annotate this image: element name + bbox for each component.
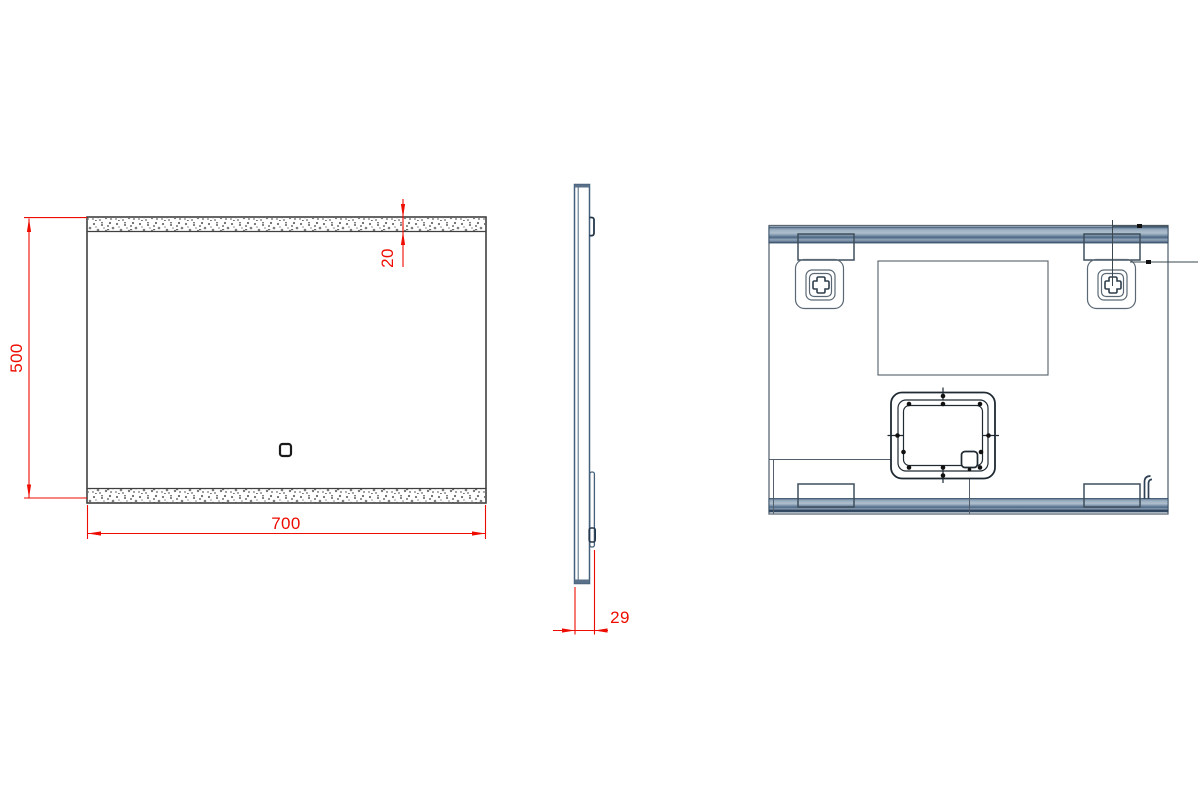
led-strip-bottom bbox=[88, 489, 485, 503]
led-strip-top bbox=[88, 218, 485, 232]
mounting-rail-top bbox=[769, 227, 1168, 243]
technical-drawing-page: 500 700 20 bbox=[0, 0, 1200, 800]
dim-height-label: 500 bbox=[7, 343, 26, 373]
junction-box bbox=[888, 388, 1000, 484]
dim-width-label: 700 bbox=[271, 514, 301, 533]
mirror-three-view-drawing: 500 700 20 bbox=[0, 0, 1200, 800]
dim-height-500: 500 bbox=[7, 218, 87, 498]
tick-mark bbox=[1146, 260, 1151, 264]
side-profile-outline bbox=[575, 185, 590, 584]
touch-sensor-icon bbox=[280, 444, 291, 456]
rear-view bbox=[769, 220, 1198, 514]
cable-entry-dot bbox=[968, 468, 972, 472]
dim-width-700: 700 bbox=[88, 505, 486, 539]
mirror-front-outline bbox=[87, 217, 486, 503]
side-top-cap bbox=[575, 185, 590, 188]
side-bottom-cap bbox=[575, 580, 590, 584]
cable-entry-port bbox=[962, 452, 978, 468]
dim-depth-label: 29 bbox=[610, 608, 630, 627]
tick-mark bbox=[1137, 224, 1142, 228]
front-view: 500 700 20 bbox=[7, 199, 486, 539]
dim-depth-29: 29 bbox=[553, 550, 630, 635]
side-view: 29 bbox=[553, 185, 630, 635]
junction-box-profile bbox=[590, 472, 595, 547]
dim-strip-label: 20 bbox=[378, 248, 397, 268]
